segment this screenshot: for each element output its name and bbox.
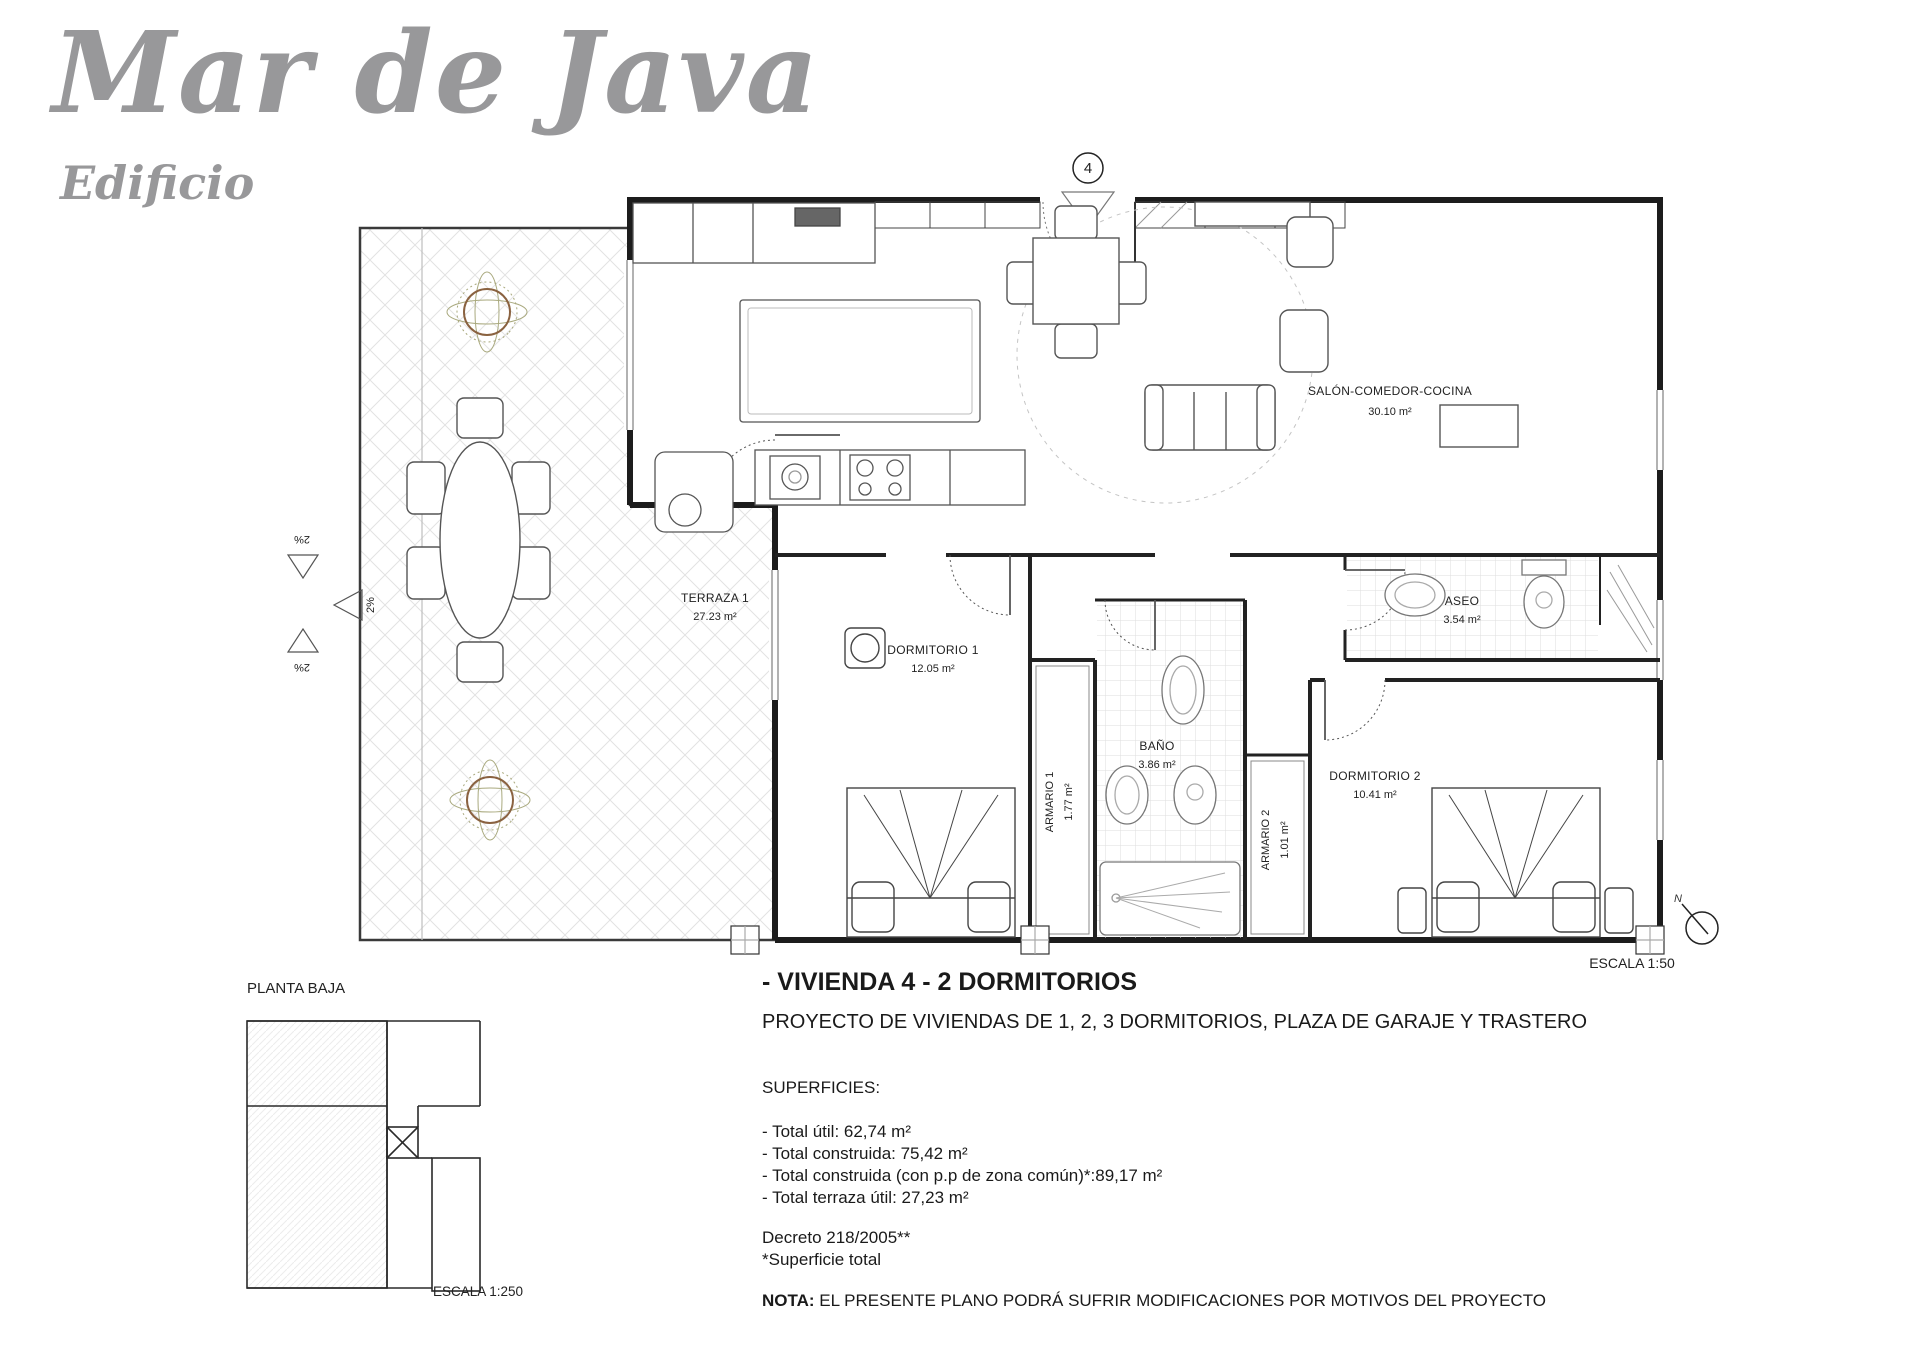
room-label-dormitorio2: DORMITORIO 2 bbox=[1329, 769, 1420, 783]
slope-label-3: 2% bbox=[294, 661, 310, 673]
room-area-aseo: 3.54 m² bbox=[1443, 614, 1481, 626]
room-area-dormitorio1: 12.05 m² bbox=[911, 663, 955, 675]
superficie-total-construida: - Total construida: 75,42 m² bbox=[762, 1144, 1662, 1163]
room-area-dormitorio2: 10.41 m² bbox=[1353, 789, 1397, 801]
room-area-salon: 30.10 m² bbox=[1368, 406, 1412, 418]
dormitorio1: DORMITORIO 1 12.05 m² bbox=[845, 628, 1015, 937]
entrance-marker: 4 bbox=[1084, 160, 1092, 177]
floor-plan-page: Mar de Java Edificio bbox=[0, 0, 1920, 1357]
keyplan-drawing bbox=[245, 1017, 505, 1302]
room-label-terraza: TERRAZA 1 bbox=[681, 591, 749, 605]
nota-line: NOTA: EL PRESENTE PLANO PODRÁ SUFRIR MOD… bbox=[762, 1291, 1662, 1311]
room-area-bano: 3.86 m² bbox=[1138, 759, 1176, 771]
superficie-total-util: - Total útil: 62,74 m² bbox=[762, 1122, 1662, 1141]
superficies-title: SUPERFICIES: bbox=[762, 1078, 1662, 1098]
nota-text: EL PRESENTE PLANO PODRÁ SUFRIR MODIFICAC… bbox=[819, 1291, 1546, 1310]
floor-plan-drawing: TERRAZA 1 27.23 m² 2% 2% 2% bbox=[250, 140, 1730, 970]
room-area-armario1: 1.77 m² bbox=[1063, 783, 1075, 821]
armario1: ARMARIO 1 1.77 m² bbox=[1036, 666, 1089, 934]
slope-label-1: 2% bbox=[294, 533, 310, 545]
room-label-dormitorio1: DORMITORIO 1 bbox=[887, 643, 978, 657]
superficie-note: *Superficie total bbox=[762, 1250, 1662, 1269]
logo-subtitle: Edificio bbox=[60, 160, 254, 206]
room-label-aseo: ASEO bbox=[1445, 594, 1480, 608]
keyplan-scale-label: ESCALA 1:250 bbox=[433, 1284, 523, 1299]
north-compass-icon: N bbox=[1674, 893, 1718, 944]
room-area-armario2: 1.01 m² bbox=[1279, 821, 1291, 859]
dwelling-heading: - VIVIENDA 4 - 2 DORMITORIOS bbox=[762, 968, 1662, 997]
nota-label: NOTA: bbox=[762, 1291, 815, 1310]
superficie-construida-comun: - Total construida (con p.p de zona comú… bbox=[762, 1166, 1662, 1185]
north-label: N bbox=[1674, 893, 1682, 905]
slope-label-2: 2% bbox=[365, 597, 377, 613]
room-label-salon: SALÓN-COMEDOR-COCINA bbox=[1308, 383, 1472, 398]
keyplan-title: PLANTA BAJA bbox=[247, 980, 345, 997]
room-label-armario2: ARMARIO 2 bbox=[1260, 810, 1272, 871]
kitchen bbox=[633, 203, 1025, 532]
salon: SALÓN-COMEDOR-COCINA 30.10 m² bbox=[1007, 202, 1518, 503]
armario2: ARMARIO 2 1.01 m² bbox=[1251, 761, 1304, 934]
dormitorio2: DORMITORIO 2 10.41 m² bbox=[1329, 769, 1633, 937]
terrace: TERRAZA 1 27.23 m² bbox=[360, 228, 775, 940]
project-subheading: PROYECTO DE VIVIENDAS DE 1, 2, 3 DORMITO… bbox=[762, 1011, 1662, 1034]
room-label-bano: BAÑO bbox=[1139, 739, 1174, 753]
room-label-armario1: ARMARIO 1 bbox=[1044, 772, 1056, 833]
decreto-note: Decreto 218/2005** bbox=[762, 1228, 1662, 1247]
room-area-terraza: 27.23 m² bbox=[693, 611, 737, 623]
logo-title: Mar de Java bbox=[52, 18, 820, 130]
info-block: - VIVIENDA 4 - 2 DORMITORIOS PROYECTO DE… bbox=[762, 968, 1662, 1311]
superficie-terraza: - Total terraza útil: 27,23 m² bbox=[762, 1188, 1662, 1207]
